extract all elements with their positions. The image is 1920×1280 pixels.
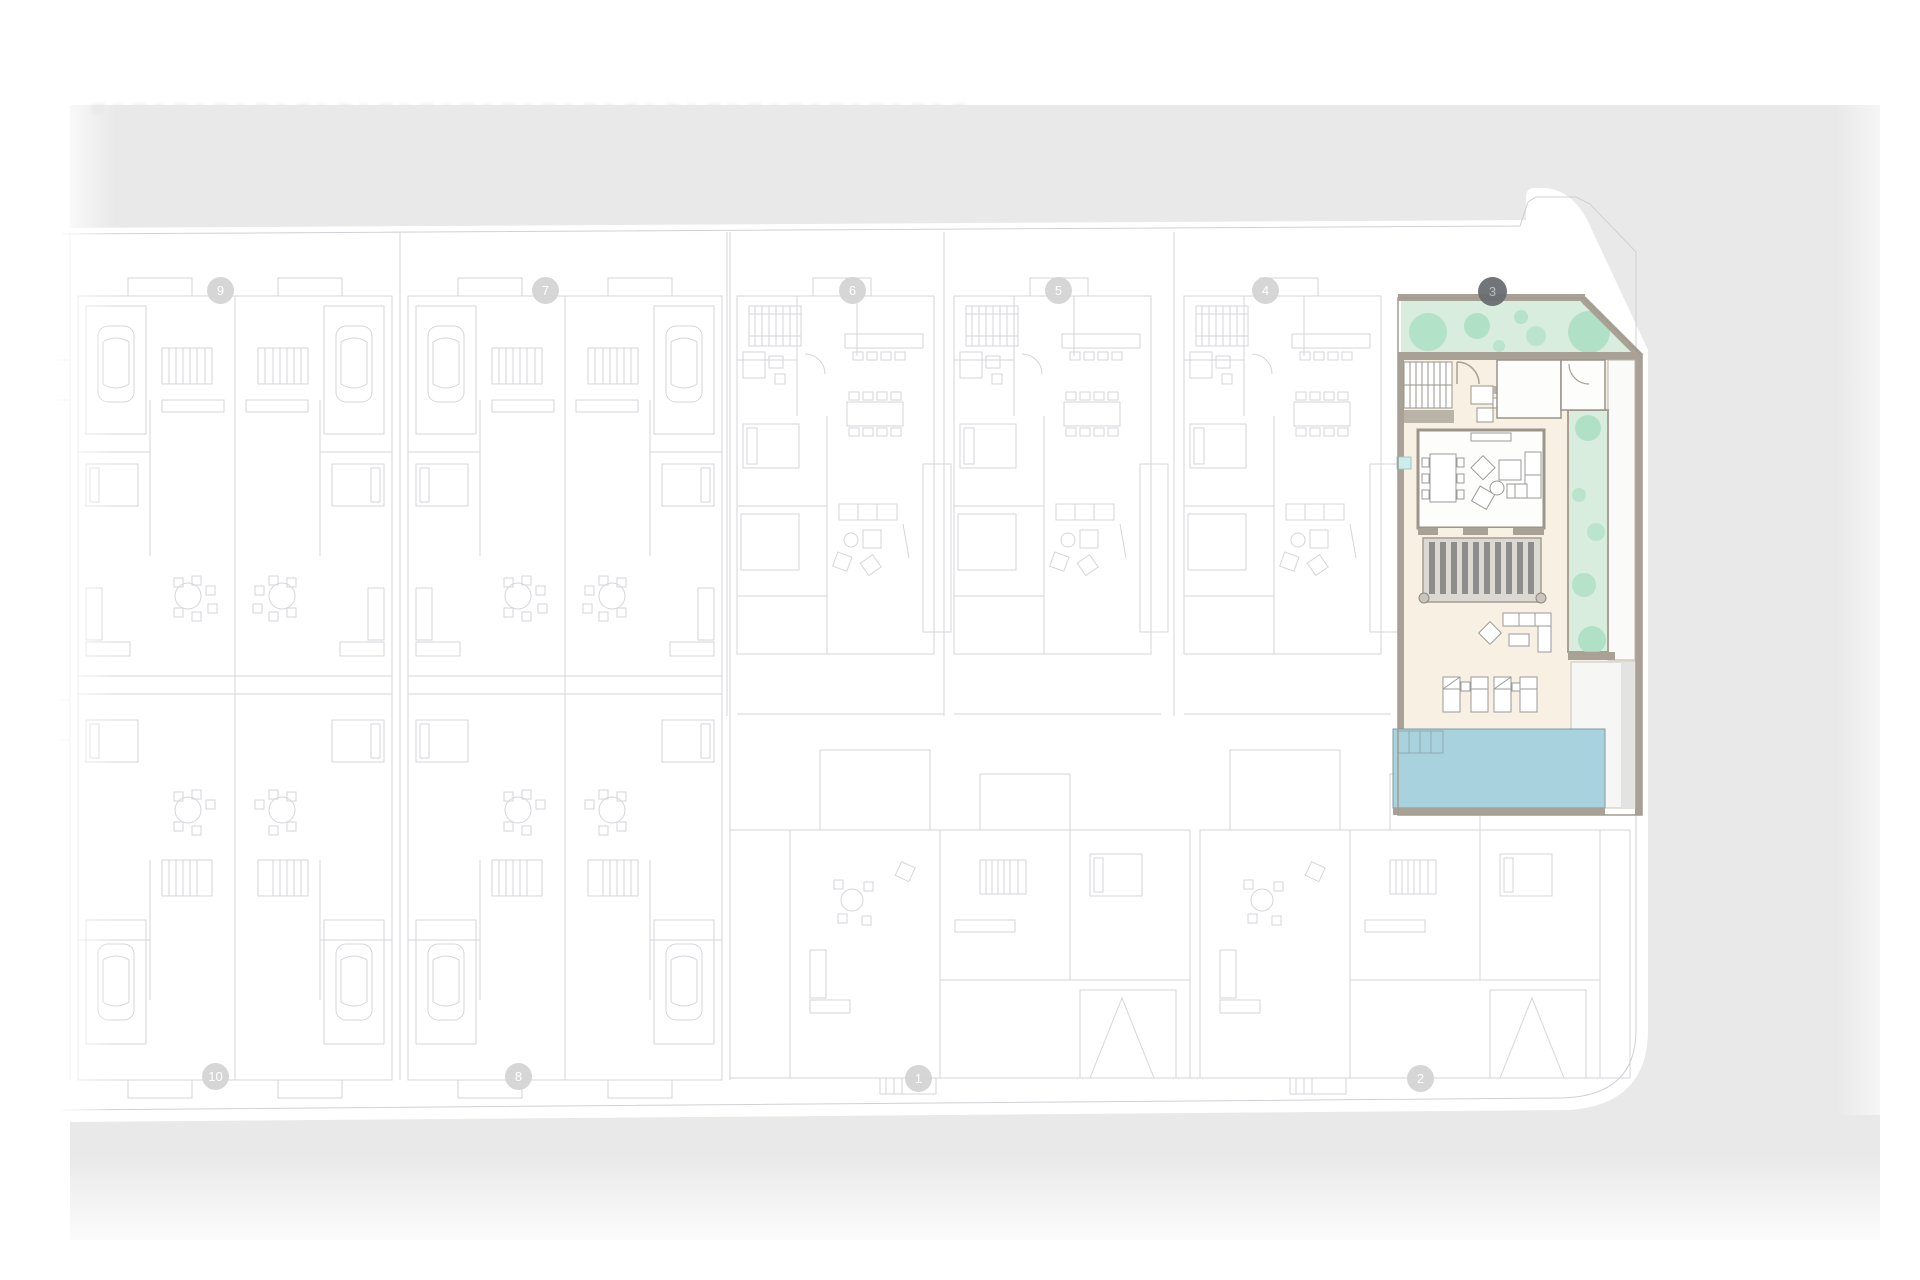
unit-marker-label: 4 — [1262, 284, 1269, 297]
unit-4-plan[interactable] — [1174, 232, 1398, 716]
site-plan-svg — [0, 0, 1920, 1280]
unit-6-plan[interactable] — [727, 232, 951, 716]
inactive-units-linework — [48, 232, 1630, 1098]
unit-block-7-8[interactable] — [400, 232, 730, 1098]
unit-marker-3-active[interactable]: 3 — [1478, 277, 1507, 306]
unit-marker-label: 7 — [542, 284, 549, 297]
plot-baselines — [48, 360, 1630, 1078]
unit-marker-2[interactable]: 2 — [1407, 1065, 1434, 1092]
unit-marker-8[interactable]: 8 — [505, 1063, 532, 1090]
site-plan-page: 9 7 6 5 4 3 10 8 1 2 — [0, 0, 1920, 1280]
unit-marker-label: 1 — [915, 1072, 922, 1085]
unit-marker-label: 9 — [217, 284, 224, 297]
unit-1-plan[interactable] — [790, 750, 1190, 1094]
unit-marker-label: 5 — [1055, 284, 1062, 297]
unit-marker-7[interactable]: 7 — [532, 277, 559, 304]
unit-marker-1[interactable]: 1 — [905, 1065, 932, 1092]
unit-block-9-10[interactable] — [70, 232, 400, 1098]
unit-marker-label: 10 — [208, 1070, 222, 1083]
unit-marker-10[interactable]: 10 — [202, 1063, 229, 1090]
unit-marker-label: 2 — [1417, 1072, 1424, 1085]
unit-marker-9[interactable]: 9 — [207, 277, 234, 304]
unit-marker-label: 3 — [1489, 285, 1496, 298]
unit-marker-label: 8 — [515, 1070, 522, 1083]
unit-5-plan[interactable] — [944, 232, 1168, 716]
unit-marker-4[interactable]: 4 — [1252, 277, 1279, 304]
unit-marker-5[interactable]: 5 — [1045, 277, 1072, 304]
unit-marker-6[interactable]: 6 — [839, 277, 866, 304]
unit-marker-label: 6 — [849, 284, 856, 297]
unit-3-highlighted[interactable] — [1393, 294, 1642, 815]
